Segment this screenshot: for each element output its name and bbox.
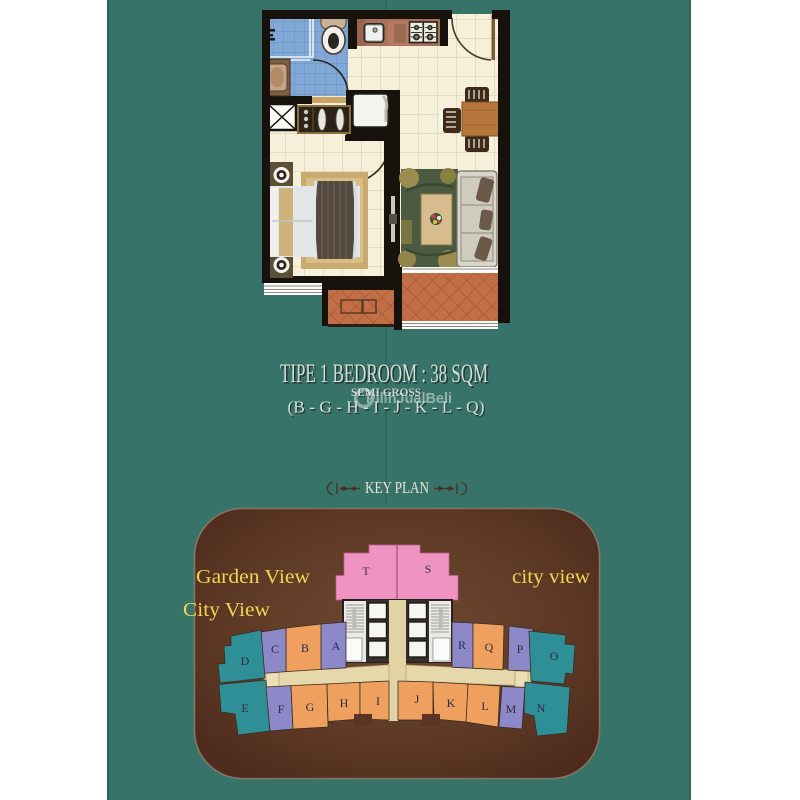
svg-text:R: R	[458, 638, 466, 652]
svg-text:F: F	[278, 702, 285, 716]
svg-text:Garden View: Garden View	[196, 566, 311, 588]
svg-text:E: E	[241, 701, 248, 715]
svg-text:PilihJualBeli: PilihJualBeli	[366, 391, 452, 407]
svg-text:H: H	[340, 696, 349, 710]
svg-text:O: O	[550, 649, 559, 663]
svg-text:Q: Q	[485, 640, 494, 654]
svg-text:A: A	[332, 639, 341, 653]
svg-text:L: L	[481, 699, 488, 713]
svg-text:City View: City View	[183, 599, 271, 621]
svg-text:I: I	[376, 694, 380, 708]
svg-text:N: N	[537, 701, 546, 715]
svg-text:D: D	[241, 654, 250, 668]
svg-text:KEY PLAN: KEY PLAN	[365, 478, 429, 497]
svg-text:P: P	[517, 642, 524, 656]
svg-text:C: C	[271, 642, 279, 656]
svg-text:B: B	[301, 641, 309, 655]
svg-text:G: G	[306, 700, 315, 714]
svg-text:T: T	[362, 564, 370, 578]
svg-text:J: J	[415, 692, 420, 706]
svg-text:TIPE 1 BEDROOM : 38 SQM: TIPE 1 BEDROOM : 38 SQM	[280, 359, 488, 388]
svg-text:city view: city view	[512, 566, 591, 588]
svg-text:M: M	[506, 702, 517, 716]
svg-text:S: S	[425, 562, 432, 576]
svg-text:K: K	[447, 696, 456, 710]
